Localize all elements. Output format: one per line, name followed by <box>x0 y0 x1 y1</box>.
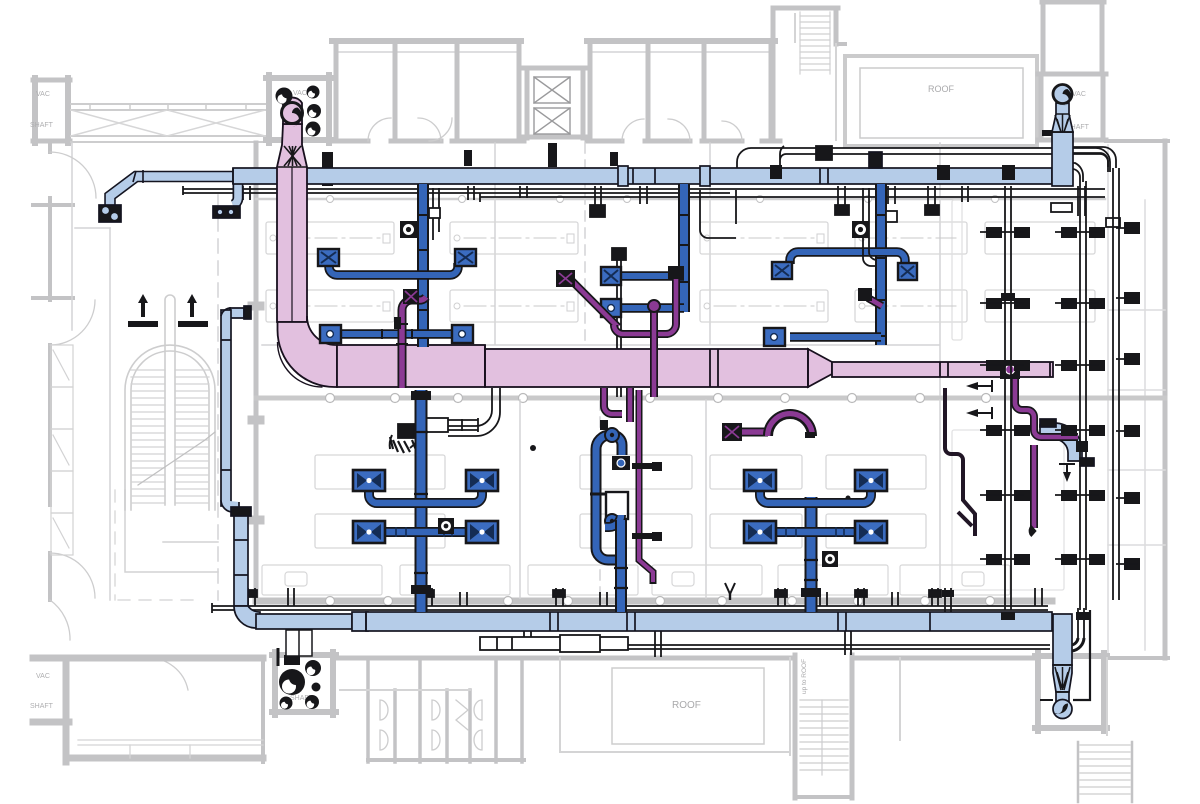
svg-text:VAC: VAC <box>1072 91 1086 98</box>
svg-text:VAC: VAC <box>293 90 307 97</box>
svg-text:ROOF: ROOF <box>928 84 955 94</box>
svg-text:SHAFT: SHAFT <box>30 122 54 129</box>
svg-text:VAC: VAC <box>36 91 50 98</box>
svg-text:SHAFT: SHAFT <box>30 703 54 710</box>
svg-text:up to ROOF: up to ROOF <box>801 659 808 694</box>
svg-text:ROOF: ROOF <box>672 700 701 711</box>
svg-text:VAC: VAC <box>36 673 50 680</box>
